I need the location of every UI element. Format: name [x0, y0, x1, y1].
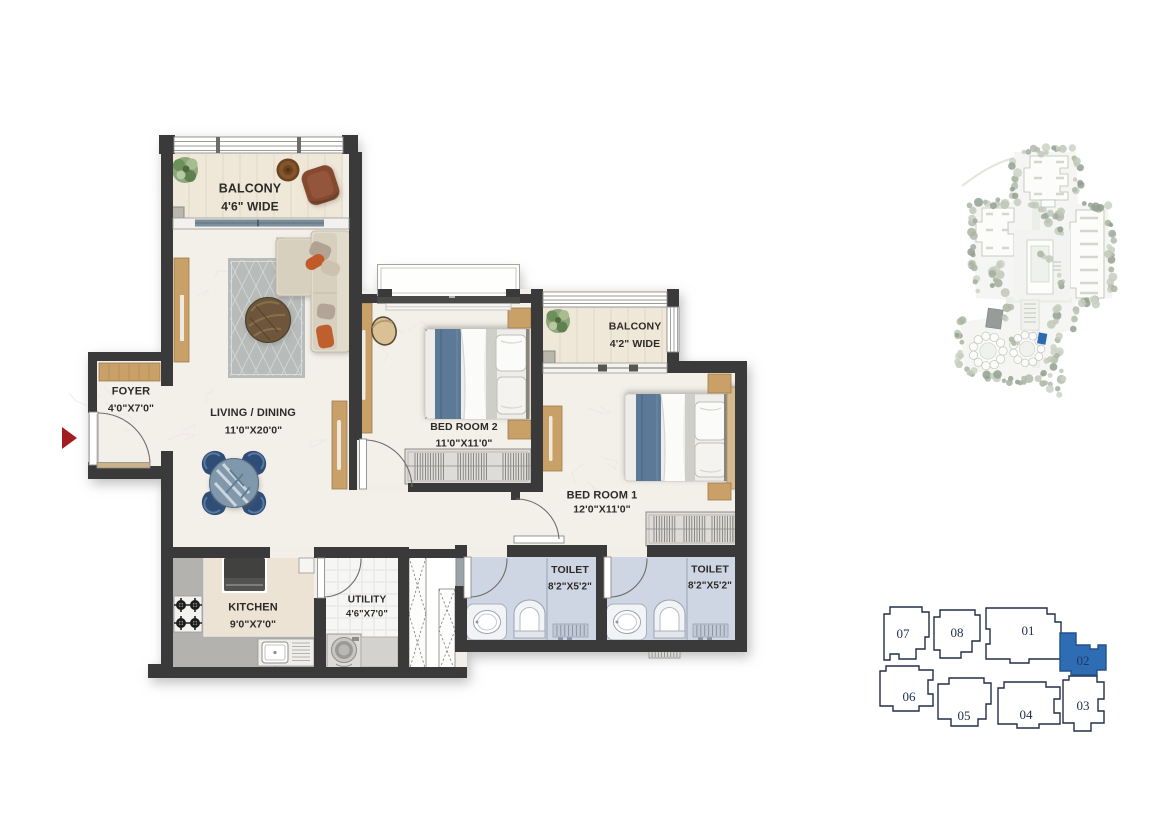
- svg-text:06: 06: [903, 689, 917, 704]
- svg-text:KITCHEN: KITCHEN: [228, 602, 278, 614]
- svg-text:BALCONY: BALCONY: [219, 182, 282, 196]
- svg-text:8'2"X5'2": 8'2"X5'2": [688, 581, 732, 592]
- svg-text:07: 07: [897, 626, 911, 641]
- svg-text:12'0"X11'0": 12'0"X11'0": [573, 504, 631, 516]
- svg-text:LIVING / DINING: LIVING / DINING: [210, 407, 296, 419]
- svg-text:11'0"X20'0": 11'0"X20'0": [225, 425, 283, 437]
- svg-text:9'0"X7'0": 9'0"X7'0": [230, 619, 276, 631]
- svg-text:4'6"X7'0": 4'6"X7'0": [346, 609, 388, 620]
- svg-text:TOILET: TOILET: [691, 564, 729, 576]
- svg-text:UTILITY: UTILITY: [348, 595, 387, 606]
- svg-text:BALCONY: BALCONY: [609, 321, 662, 333]
- svg-text:TOILET: TOILET: [551, 564, 589, 576]
- svg-text:4'2" WIDE: 4'2" WIDE: [610, 338, 660, 350]
- svg-text:4'6" WIDE: 4'6" WIDE: [221, 200, 278, 214]
- svg-text:8'2"X5'2": 8'2"X5'2": [548, 582, 592, 593]
- svg-text:05: 05: [958, 708, 971, 723]
- svg-text:03: 03: [1077, 698, 1090, 713]
- svg-text:BED ROOM 2: BED ROOM 2: [430, 421, 498, 433]
- svg-text:4'0"X7'0": 4'0"X7'0": [108, 403, 154, 415]
- svg-text:11'0"X11'0": 11'0"X11'0": [436, 438, 493, 450]
- svg-text:FOYER: FOYER: [112, 386, 150, 398]
- svg-text:01: 01: [1022, 623, 1035, 638]
- svg-text:04: 04: [1020, 707, 1034, 722]
- svg-text:BED ROOM 1: BED ROOM 1: [567, 490, 638, 502]
- svg-text:02: 02: [1077, 653, 1090, 668]
- svg-text:08: 08: [951, 625, 964, 640]
